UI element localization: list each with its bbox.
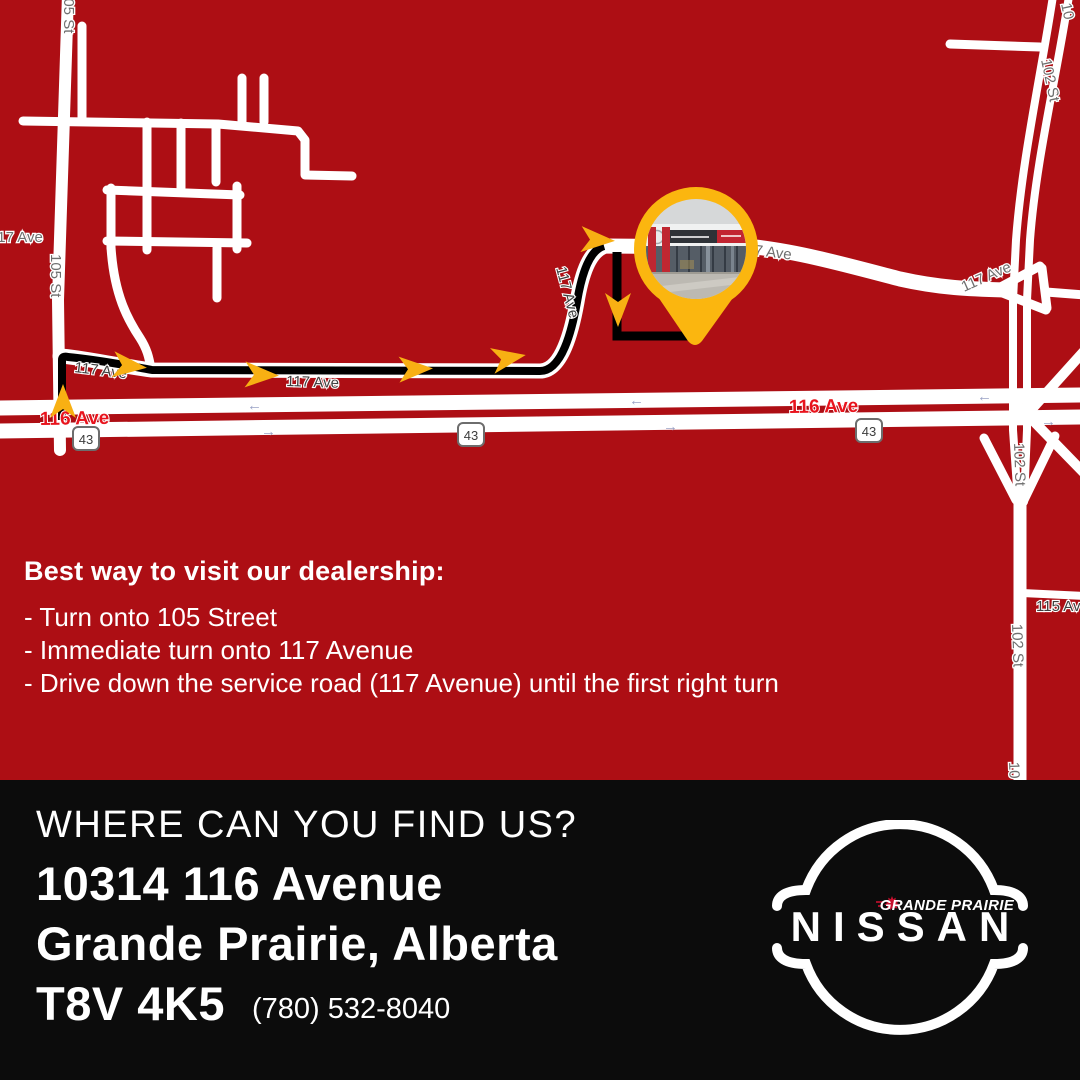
logo-top-arc [777, 824, 1023, 906]
oneway-arrow-east: → [663, 418, 678, 435]
street-label-partial-bottom: 10 [1005, 762, 1023, 779]
road-117-ave-service [60, 246, 1005, 371]
footer-heading: WHERE CAN YOU FIND US? [36, 804, 577, 847]
street-label-102-st-mid: 102 St [1010, 443, 1029, 488]
highway-43-shield: 43 [73, 427, 99, 450]
street-label-117-ave-west: 117 Ave [0, 229, 43, 246]
nissan-logo: GRANDE PRAIRIE NISSAN [770, 820, 1030, 1035]
road-top-right-stub [950, 44, 1040, 47]
nissan-wordmark: NISSAN [791, 903, 1022, 950]
address-city: Grande Prairie, Alberta [36, 916, 558, 971]
route-arrows [50, 226, 631, 418]
dealership-locator-graphic: ← ← ← → → → 105 St 117 Ave 105 St 117 Av… [0, 0, 1080, 1080]
street-label-116-ave-west: 116 Ave [40, 408, 110, 430]
street-label-116-ave-east: 116 Ave [789, 396, 859, 418]
phone-number: (780) 532-8040 [252, 993, 450, 1026]
direction-step: - Turn onto 105 Street [24, 601, 1044, 634]
building-red-pillar [662, 227, 670, 273]
road-grid-connector [111, 247, 151, 369]
street-label-partial-top: 10 [1057, 1, 1077, 21]
street-label-117-ave-at-pin: 7 Ave [754, 242, 793, 263]
oneway-arrow-west: ← [977, 388, 992, 405]
oneway-arrow-west: ← [247, 397, 262, 414]
street-label-105-st-mid: 105 St [47, 254, 64, 298]
road-116-ave-westbound [0, 395, 1080, 408]
road-116-ave-eastbound [0, 417, 1080, 431]
svg-text:43: 43 [79, 432, 93, 447]
street-label-117-ave-service-2: 117 Ave [286, 373, 339, 392]
oneway-arrow-east: → [1041, 413, 1056, 430]
address-postal-code: T8V 4K5 [36, 976, 225, 1031]
svg-text:43: 43 [464, 428, 478, 443]
street-label-105-st-top: 105 St [60, 0, 77, 34]
oneway-arrow-east: → [261, 423, 276, 440]
directions-block: Best way to visit our dealership: - Turn… [24, 556, 1044, 700]
svg-text:43: 43 [862, 424, 876, 439]
address-street: 10314 116 Avenue [36, 856, 443, 911]
highway-43-shield: 43 [458, 423, 484, 446]
direction-step: - Immediate turn onto 117 Avenue [24, 634, 1044, 667]
logo-bottom-arc [777, 948, 1023, 1030]
road-grid-h1 [23, 121, 352, 176]
building-red-pillar [648, 227, 656, 273]
direction-step: - Drive down the service road (117 Avenu… [24, 667, 1044, 700]
oneway-arrow-west: ← [629, 392, 644, 409]
directions-heading: Best way to visit our dealership: [24, 556, 1044, 587]
footer-panel: WHERE CAN YOU FIND US? 10314 116 Avenue … [0, 780, 1080, 1080]
highway-43-shield: 43 [856, 419, 882, 442]
route-main [62, 246, 604, 420]
location-pin [634, 187, 758, 345]
